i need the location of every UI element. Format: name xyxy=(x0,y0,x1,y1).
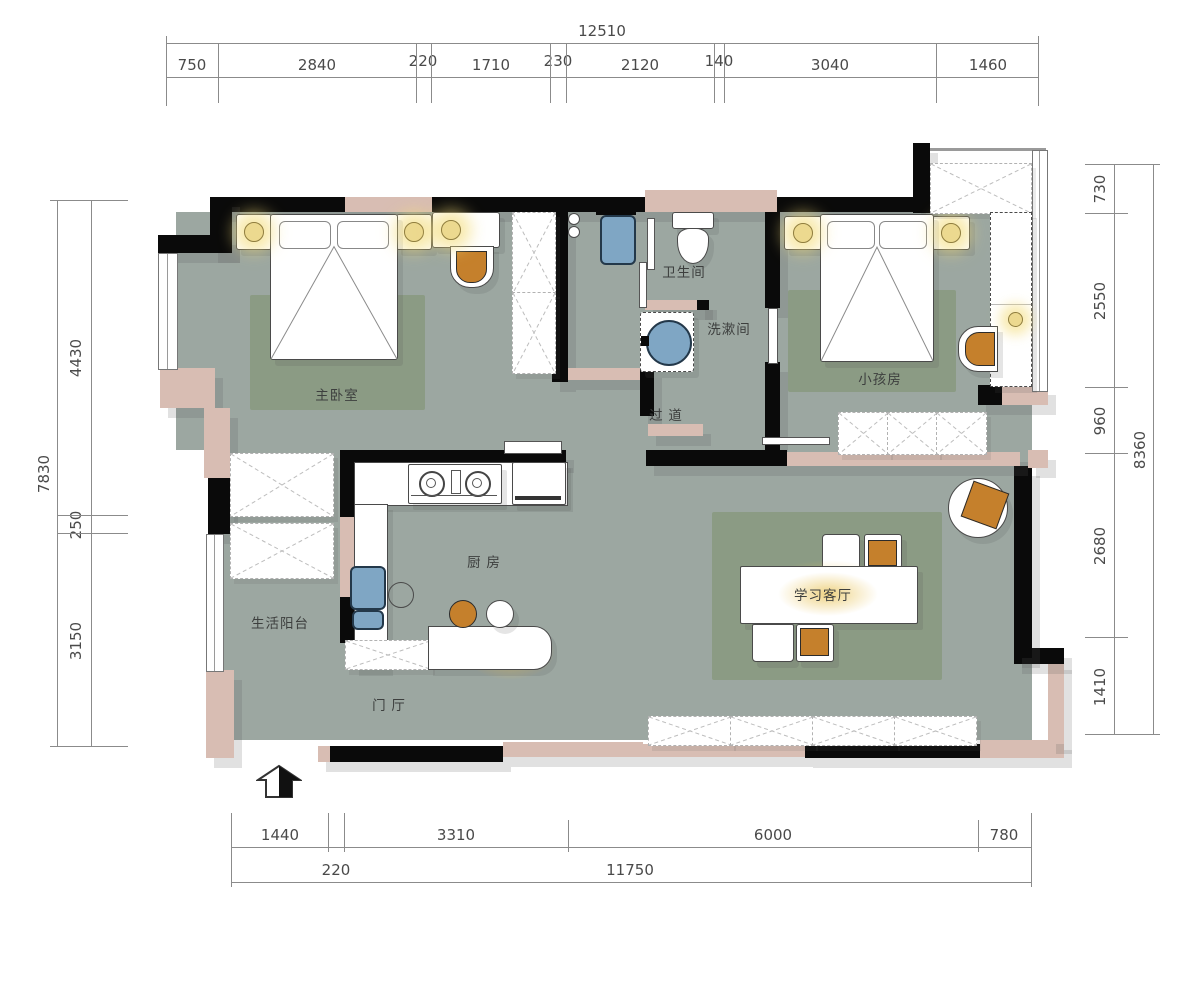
wall-infill xyxy=(318,746,330,762)
dimension-tick xyxy=(328,813,329,852)
wall-segment xyxy=(646,450,787,466)
room-label-corridor: 过 道 xyxy=(649,404,683,424)
dimension-label: 4430 xyxy=(67,328,85,388)
valve-symbol xyxy=(568,226,580,238)
dimension-tick xyxy=(166,36,167,106)
dimension-tick xyxy=(57,533,128,534)
dimension-label: 750 xyxy=(162,56,222,74)
dimension-tick xyxy=(1031,813,1032,887)
wardrobe xyxy=(512,212,556,294)
chair-cushion xyxy=(965,332,995,366)
faucet xyxy=(641,336,649,346)
dimension-line xyxy=(91,200,92,746)
floor-plan-canvas: 12510 750 2840 220 1710 230 2120 140 304… xyxy=(0,0,1200,991)
valve-symbol xyxy=(568,213,580,225)
dimension-tick xyxy=(1085,637,1128,638)
dimension-tick xyxy=(1085,734,1160,735)
dimension-tick xyxy=(936,43,937,103)
dimension-tick xyxy=(50,746,128,747)
cabinet-cross-lines xyxy=(895,717,976,745)
closet-top xyxy=(930,163,1032,214)
pillow xyxy=(827,221,875,249)
dimension-label: 780 xyxy=(974,826,1034,844)
dimension-label: 220 xyxy=(393,52,453,70)
window xyxy=(1032,150,1048,392)
dimension-label: 3040 xyxy=(800,56,860,74)
table-lamp xyxy=(404,222,424,242)
cabinet xyxy=(812,716,896,746)
stove-knob-strip xyxy=(411,495,497,496)
room-label-foyer: 门 厅 xyxy=(372,694,406,714)
burner xyxy=(465,471,491,497)
entrance-arrow-icon xyxy=(256,764,302,800)
dimension-tick xyxy=(416,43,417,103)
toilet-tank xyxy=(672,212,714,229)
fridge xyxy=(512,462,566,505)
wall-segment xyxy=(158,235,232,253)
window xyxy=(158,253,178,370)
cabinet-cross-lines xyxy=(813,717,895,745)
window-mullion xyxy=(1039,151,1040,391)
dimension-tick xyxy=(714,43,715,103)
dimension-line xyxy=(231,847,1031,848)
dimension-label: 1710 xyxy=(461,56,521,74)
dimension-tick xyxy=(724,43,725,103)
dimension-label: 250 xyxy=(67,495,85,555)
window-mullion xyxy=(214,535,215,671)
burner xyxy=(419,471,445,497)
room-label-master-bedroom: 主卧室 xyxy=(315,384,359,404)
wall-segment xyxy=(697,300,709,310)
chair-cushion xyxy=(456,251,487,283)
dimension-label: 6000 xyxy=(743,826,803,844)
dimension-label: 140 xyxy=(689,52,749,70)
wall-segment xyxy=(765,212,780,308)
dimension-label: 2840 xyxy=(287,56,347,74)
cabinet xyxy=(648,716,732,746)
dimension-label: 12510 xyxy=(562,22,642,40)
room-label-balcony: 生活阳台 xyxy=(251,612,309,632)
dimension-tick xyxy=(1038,36,1039,106)
cabinet-cross-lines xyxy=(231,454,333,516)
dimension-tick xyxy=(550,43,551,103)
dimension-tick xyxy=(344,813,345,852)
cabinet-cross-lines xyxy=(513,293,555,373)
bar-stool xyxy=(449,600,477,628)
dimension-tick xyxy=(566,43,567,103)
door-leaf xyxy=(504,441,562,454)
door-leaf xyxy=(768,308,778,364)
wall-infill xyxy=(645,300,705,310)
dimension-label: 730 xyxy=(1091,159,1109,219)
laundry-counter xyxy=(596,206,636,215)
room-label-kids-room: 小孩房 xyxy=(858,368,902,388)
bar-stool xyxy=(486,600,514,628)
desk-chair xyxy=(450,246,494,288)
desk-chair xyxy=(958,326,998,372)
sink-drainer xyxy=(352,610,384,630)
dimension-tick xyxy=(1085,164,1160,165)
gas-stove xyxy=(408,464,502,504)
bar-counter xyxy=(428,626,552,670)
wash-basin xyxy=(646,320,692,366)
wall-segment xyxy=(330,746,503,762)
wall-infill xyxy=(645,190,777,212)
wall-segment xyxy=(1014,466,1032,658)
cabinet-cross-lines xyxy=(839,413,888,454)
cabinet xyxy=(730,716,814,746)
dimension-label: 11750 xyxy=(600,861,660,879)
pillow xyxy=(337,221,389,249)
table-lamp xyxy=(441,220,461,240)
window xyxy=(206,534,224,672)
table-lamp xyxy=(244,222,264,242)
sink xyxy=(350,566,386,610)
faucet-swirl xyxy=(388,582,414,608)
dimension-tick xyxy=(1085,213,1128,214)
cabinet-cross-lines xyxy=(513,213,555,293)
dimension-label: 3310 xyxy=(426,826,486,844)
room-label-bathroom: 卫生间 xyxy=(662,261,706,281)
wall-infill xyxy=(160,368,215,408)
wall-segment xyxy=(805,744,980,758)
dimension-tick xyxy=(978,820,979,852)
storage-cabinet xyxy=(230,523,334,579)
wall-segment xyxy=(432,197,568,212)
cabinet-cross-lines xyxy=(346,641,430,669)
wall-infill xyxy=(204,408,230,478)
dining-chair xyxy=(864,534,902,568)
room-label-kitchen: 厨 房 xyxy=(467,551,501,571)
fridge-handle xyxy=(515,496,561,500)
stove-grate xyxy=(451,470,461,494)
dimension-line xyxy=(1153,164,1154,734)
bed xyxy=(820,214,934,362)
dimension-label: 2550 xyxy=(1091,271,1109,331)
wardrobe xyxy=(838,412,889,455)
wall-infill xyxy=(1028,450,1048,468)
dimension-tick xyxy=(1085,387,1128,388)
cabinet xyxy=(894,716,977,746)
dimension-label: 2120 xyxy=(610,56,670,74)
cabinet-cross-lines xyxy=(888,413,937,454)
pillow xyxy=(879,221,927,249)
wall-segment xyxy=(340,463,354,517)
cabinet-cross-lines xyxy=(649,717,731,745)
chair-cushion xyxy=(800,628,829,656)
dimension-label: 2680 xyxy=(1091,516,1109,576)
room-label-washroom: 洗漱间 xyxy=(707,318,751,338)
washing-machine xyxy=(600,215,636,265)
door-leaf xyxy=(639,262,647,308)
dimension-label: 230 xyxy=(528,52,588,70)
room-label-study-living: 学习客厅 xyxy=(794,584,852,604)
cabinet xyxy=(345,640,431,670)
dimension-tick xyxy=(231,813,232,887)
desk-divider xyxy=(991,304,1031,305)
wall-segment xyxy=(777,197,918,212)
door-leaf xyxy=(647,218,655,270)
desk-lamp xyxy=(1008,312,1023,327)
cabinet-cross-lines xyxy=(231,524,333,578)
dimension-line xyxy=(231,882,1031,883)
dining-chair xyxy=(752,624,794,662)
pillow xyxy=(279,221,331,249)
dimension-tick xyxy=(431,43,432,103)
wall-line xyxy=(930,148,1046,151)
wall-segment xyxy=(208,478,230,534)
wall-infill xyxy=(503,742,643,757)
dimension-label: 220 xyxy=(306,861,366,879)
wall-segment xyxy=(913,143,930,213)
bed xyxy=(270,214,398,360)
window-mullion xyxy=(167,254,168,369)
dimension-tick xyxy=(568,820,569,852)
dimension-label: 1460 xyxy=(958,56,1018,74)
wall-infill xyxy=(206,670,234,758)
wall-infill xyxy=(1048,660,1064,744)
dimension-label: 3150 xyxy=(67,611,85,671)
dimension-label: 7830 xyxy=(35,444,53,504)
wall-infill xyxy=(568,368,644,380)
wall-infill xyxy=(648,424,703,436)
wall-infill xyxy=(345,197,432,212)
table-lamp xyxy=(793,223,813,243)
dimension-line xyxy=(1114,164,1115,734)
wardrobe xyxy=(512,292,556,374)
cabinet-cross-lines xyxy=(931,164,1031,213)
wardrobe xyxy=(936,412,987,455)
table-lamp xyxy=(941,223,961,243)
dimension-tick xyxy=(218,43,219,103)
dimension-label: 8360 xyxy=(1131,420,1149,480)
dining-chair xyxy=(796,624,834,662)
dimension-tick xyxy=(1085,453,1128,454)
wall-segment xyxy=(978,385,1002,405)
chair-cushion xyxy=(868,540,897,566)
dimension-line xyxy=(166,77,1038,78)
cabinet-cross-lines xyxy=(937,413,986,454)
dimension-label: 960 xyxy=(1091,391,1109,451)
dimension-line xyxy=(57,200,58,746)
dimension-label: 1410 xyxy=(1091,657,1109,717)
dimension-label: 1440 xyxy=(250,826,310,844)
wardrobe xyxy=(887,412,938,455)
storage-cabinet xyxy=(230,453,334,517)
dimension-line xyxy=(166,43,1038,44)
cabinet-cross-lines xyxy=(731,717,813,745)
dimension-tick xyxy=(57,515,128,516)
dimension-tick xyxy=(50,200,128,201)
wall-shelf xyxy=(762,437,830,445)
